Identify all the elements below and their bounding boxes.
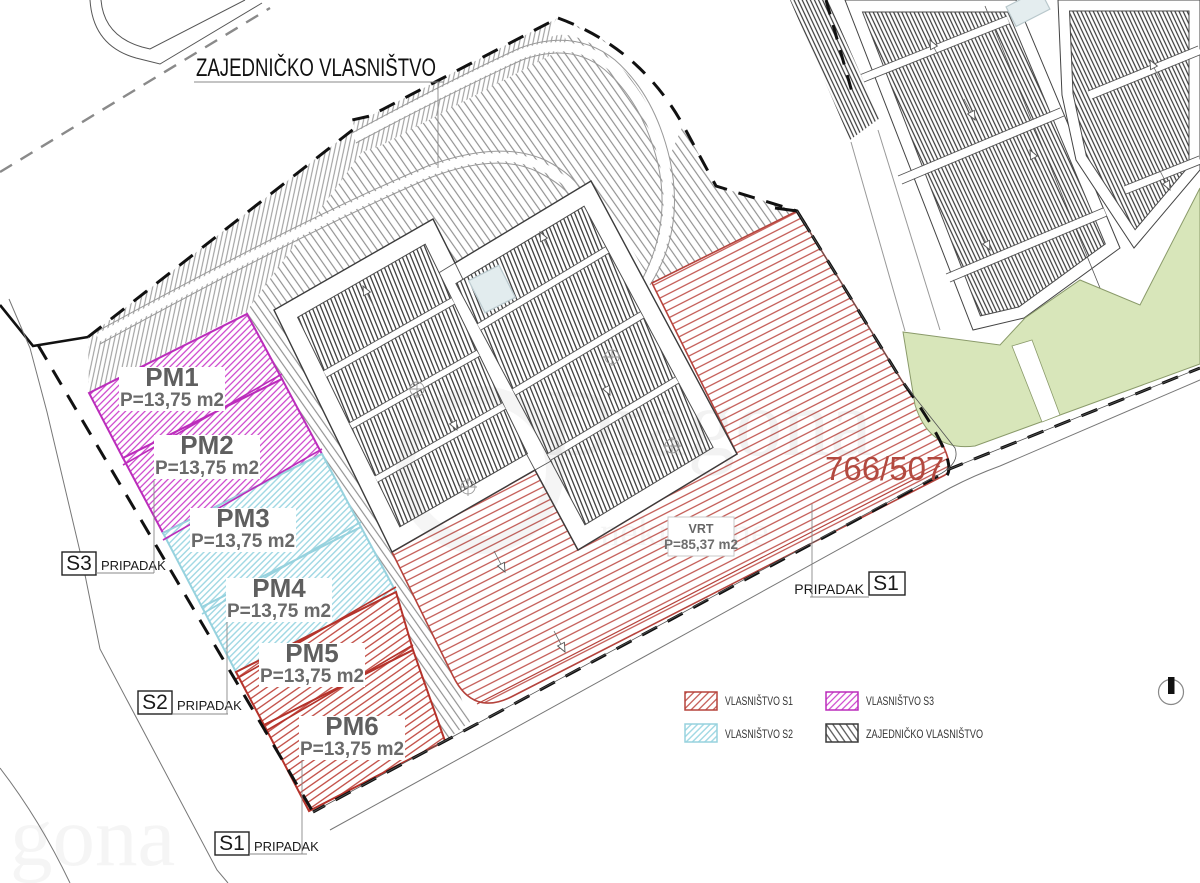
svg-text:PM6: PM6 [325, 711, 378, 741]
svg-text:S1: S1 [219, 832, 245, 855]
svg-text:VLASNIŠTVO S3: VLASNIŠTVO S3 [866, 693, 934, 708]
svg-text:PM2: PM2 [180, 430, 233, 460]
svg-text:P=13,75 m2: P=13,75 m2 [191, 531, 295, 552]
svg-text:P=13,75 m2: P=13,75 m2 [155, 458, 259, 479]
svg-text:VLASNIŠTVO S1: VLASNIŠTVO S1 [725, 693, 793, 708]
svg-text:766/507: 766/507 [825, 450, 944, 487]
svg-text:P=85,37 m2: P=85,37 m2 [664, 537, 738, 552]
svg-text:S1: S1 [873, 572, 899, 595]
svg-text:S3: S3 [66, 552, 92, 575]
svg-text:gona: gona [10, 790, 175, 883]
svg-text:ZAJEDNIČKO VLASNIŠTVO: ZAJEDNIČKO VLASNIŠTVO [866, 726, 983, 741]
svg-text:PM3: PM3 [216, 503, 269, 533]
svg-text:PM4: PM4 [252, 573, 306, 603]
svg-text:P=13,75 m2: P=13,75 m2 [300, 739, 404, 760]
svg-text:VRT: VRT [689, 522, 714, 536]
svg-text:VLASNIŠTVO S2: VLASNIŠTVO S2 [725, 726, 793, 741]
svg-text:P=13,75 m2: P=13,75 m2 [227, 601, 331, 622]
svg-text:PM5: PM5 [285, 638, 338, 668]
svg-text:S2: S2 [142, 691, 168, 714]
svg-text:ZAJEDNIČKO VLASNIŠTVO: ZAJEDNIČKO VLASNIŠTVO [196, 53, 436, 82]
svg-text:PRIPADAK: PRIPADAK [254, 839, 319, 854]
svg-text:PRIPADAK: PRIPADAK [101, 558, 166, 573]
svg-text:Dragona: Dragona [545, 370, 872, 476]
svg-text:P=13,75 m2: P=13,75 m2 [260, 666, 364, 687]
svg-text:P=13,75 m2: P=13,75 m2 [120, 390, 224, 411]
svg-text:PRIPADAK: PRIPADAK [177, 698, 242, 713]
svg-text:PRIPADAK: PRIPADAK [794, 581, 864, 597]
svg-text:PM1: PM1 [145, 362, 198, 392]
